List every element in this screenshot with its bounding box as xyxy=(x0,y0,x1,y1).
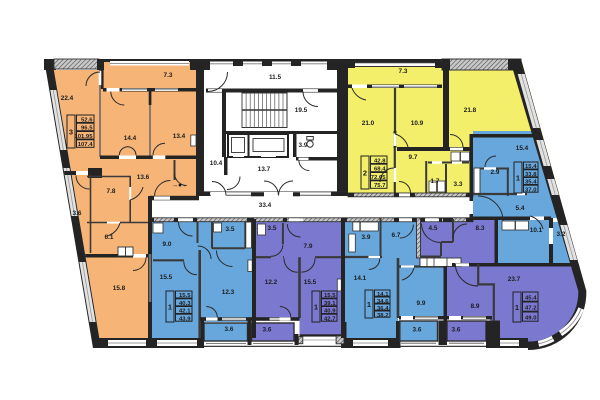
svg-text:3.3: 3.3 xyxy=(454,181,463,188)
svg-text:3.9: 3.9 xyxy=(362,234,371,241)
svg-text:75.7: 75.7 xyxy=(374,183,386,189)
svg-text:52.6: 52.6 xyxy=(81,117,93,123)
svg-text:21.0: 21.0 xyxy=(362,120,375,127)
svg-text:96.5: 96.5 xyxy=(81,126,93,132)
svg-text:101.95: 101.95 xyxy=(74,134,93,140)
svg-text:15.5: 15.5 xyxy=(304,279,317,286)
svg-text:8.9: 8.9 xyxy=(471,303,480,310)
svg-text:7.9: 7.9 xyxy=(304,243,313,250)
svg-text:→●←: →●← xyxy=(172,182,189,189)
svg-text:37.0: 37.0 xyxy=(525,187,537,193)
svg-text:3.6: 3.6 xyxy=(452,327,461,334)
svg-text:15.4: 15.4 xyxy=(525,164,537,170)
svg-text:15.5: 15.5 xyxy=(179,293,191,299)
svg-text:43.9: 43.9 xyxy=(179,316,191,322)
svg-text:42.8: 42.8 xyxy=(374,158,386,164)
svg-text:9.9: 9.9 xyxy=(417,300,426,307)
svg-text:1: 1 xyxy=(168,303,172,312)
svg-text:42.7: 42.7 xyxy=(324,316,336,322)
svg-text:7.3: 7.3 xyxy=(399,68,408,75)
svg-text:19.5: 19.5 xyxy=(295,107,308,114)
svg-text:2: 2 xyxy=(363,169,367,178)
svg-text:15.5: 15.5 xyxy=(324,293,336,299)
svg-text:3.9: 3.9 xyxy=(299,142,308,149)
svg-text:6.1: 6.1 xyxy=(105,234,114,241)
svg-text:40.3: 40.3 xyxy=(179,301,191,307)
svg-text:3.6: 3.6 xyxy=(263,327,272,334)
svg-text:21.8: 21.8 xyxy=(464,107,477,114)
svg-text:7.3: 7.3 xyxy=(164,72,173,79)
svg-text:49.0: 49.0 xyxy=(525,315,537,321)
svg-text:13.4: 13.4 xyxy=(173,133,186,140)
svg-text:35.4: 35.4 xyxy=(525,180,537,186)
svg-text:72.05: 72.05 xyxy=(371,175,386,181)
svg-text:1.7: 1.7 xyxy=(431,178,440,185)
svg-text:22.4: 22.4 xyxy=(61,95,74,102)
svg-text:13.6: 13.6 xyxy=(137,174,150,181)
svg-text:3.2: 3.2 xyxy=(557,231,566,238)
svg-text:3.6: 3.6 xyxy=(73,210,82,217)
svg-text:15.8: 15.8 xyxy=(113,285,126,292)
svg-text:12.3: 12.3 xyxy=(222,289,235,296)
svg-text:45.4: 45.4 xyxy=(525,295,537,301)
svg-text:1: 1 xyxy=(515,303,519,312)
svg-text:23.7: 23.7 xyxy=(508,276,521,283)
svg-text:40.9: 40.9 xyxy=(324,309,336,315)
svg-text:6.7: 6.7 xyxy=(392,232,401,239)
svg-text:10.4: 10.4 xyxy=(210,160,223,167)
svg-text:13.7: 13.7 xyxy=(258,166,271,173)
svg-text:4.5: 4.5 xyxy=(429,225,438,232)
svg-text:14.1: 14.1 xyxy=(377,292,389,298)
svg-text:1: 1 xyxy=(367,300,371,309)
svg-text:14.4: 14.4 xyxy=(124,135,137,142)
svg-text:10.9: 10.9 xyxy=(411,120,424,127)
svg-text:1: 1 xyxy=(516,174,520,183)
svg-text:15.4: 15.4 xyxy=(516,145,529,152)
svg-text:7.8: 7.8 xyxy=(107,188,116,195)
svg-text:2.9: 2.9 xyxy=(491,169,500,176)
svg-text:42.1: 42.1 xyxy=(179,309,191,315)
svg-text:9.0: 9.0 xyxy=(163,241,172,248)
svg-text:3: 3 xyxy=(69,128,73,137)
svg-text:15.5: 15.5 xyxy=(160,274,173,281)
svg-text:36.4: 36.4 xyxy=(377,306,389,312)
svg-text:38.2: 38.2 xyxy=(377,313,389,319)
svg-text:9.7: 9.7 xyxy=(409,154,418,161)
svg-text:12.2: 12.2 xyxy=(265,279,278,286)
svg-text:3.5: 3.5 xyxy=(268,225,277,232)
svg-text:33.8: 33.8 xyxy=(525,172,537,178)
svg-text:14.1: 14.1 xyxy=(354,275,367,282)
svg-text:10.1: 10.1 xyxy=(530,227,543,234)
svg-text:3.6: 3.6 xyxy=(413,327,422,334)
svg-text:68.4: 68.4 xyxy=(374,167,386,173)
svg-text:34.6: 34.6 xyxy=(377,299,389,305)
svg-text:3.6: 3.6 xyxy=(225,326,234,333)
svg-text:107.4: 107.4 xyxy=(78,142,93,148)
svg-text:47.2: 47.2 xyxy=(525,305,537,311)
svg-text:11.5: 11.5 xyxy=(269,74,282,81)
svg-text:39.1: 39.1 xyxy=(324,301,336,307)
svg-text:1: 1 xyxy=(314,303,318,312)
svg-text:5.4: 5.4 xyxy=(516,205,525,212)
svg-text:3.5: 3.5 xyxy=(226,226,235,233)
svg-text:8.3: 8.3 xyxy=(476,225,485,232)
svg-text:33.4: 33.4 xyxy=(259,202,272,209)
